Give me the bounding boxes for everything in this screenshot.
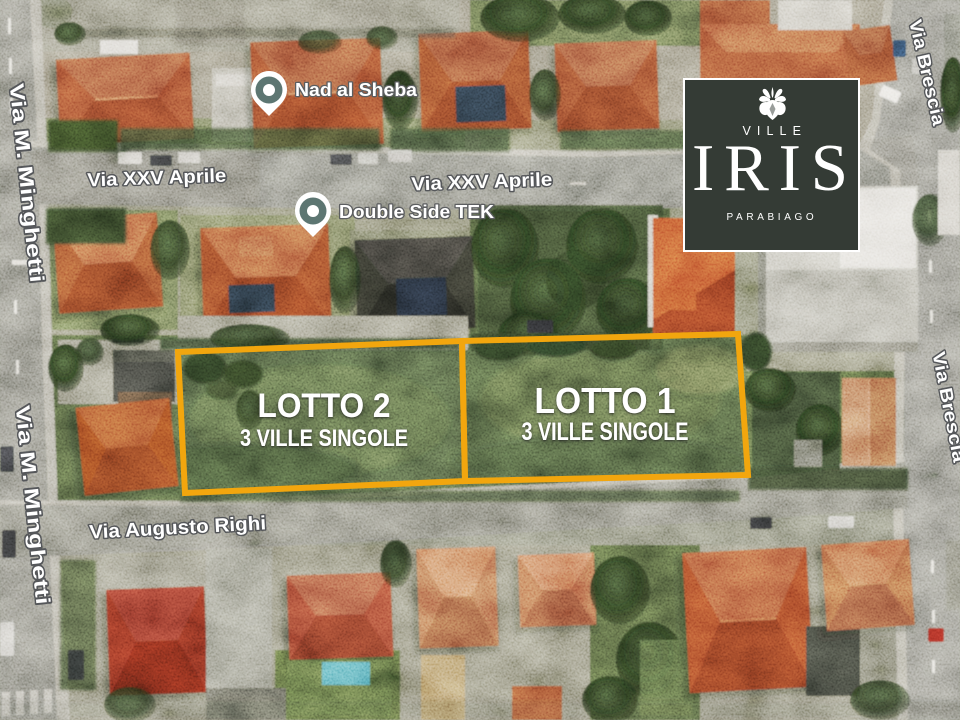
svg-text:PARABIAGO: PARABIAGO — [727, 212, 818, 223]
svg-text:Via XXV Aprile: Via XXV Aprile — [411, 170, 553, 196]
svg-text:Via M. Minghetti: Via M. Minghetti — [11, 404, 54, 605]
svg-text:Via Augusto Righi: Via Augusto Righi — [89, 512, 267, 543]
svg-text:Via M. Minghetti: Via M. Minghetti — [5, 82, 48, 283]
svg-text:Double Side TEK: Double Side TEK — [339, 202, 494, 222]
svg-text:Via XXV Aprile: Via XXV Aprile — [87, 166, 227, 192]
svg-text:LOTTO 2: LOTTO 2 — [258, 387, 391, 425]
svg-text:3 VILLE SINGOLE: 3 VILLE SINGOLE — [522, 418, 689, 446]
svg-text:Via Brescia: Via Brescia — [905, 18, 949, 129]
svg-text:LOTTO 1: LOTTO 1 — [535, 380, 676, 421]
svg-text:3 VILLE SINGOLE: 3 VILLE SINGOLE — [240, 425, 408, 452]
svg-text:IRIS: IRIS — [692, 131, 862, 205]
svg-text:Nad al Sheba: Nad al Sheba — [295, 80, 418, 100]
svg-text:Via Brescia: Via Brescia — [928, 350, 960, 465]
